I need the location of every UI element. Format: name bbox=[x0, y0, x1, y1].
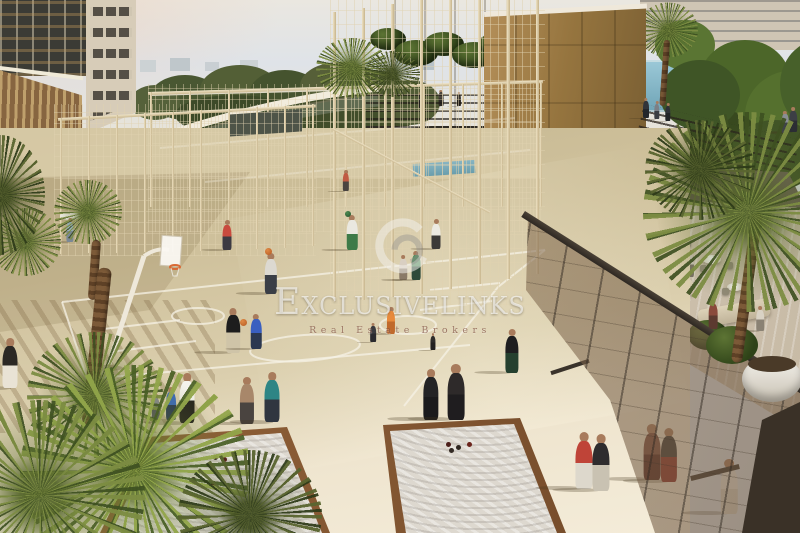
person bbox=[370, 323, 376, 342]
boule-ball bbox=[449, 448, 454, 453]
boule-ball bbox=[467, 442, 472, 447]
fence-post bbox=[60, 118, 62, 254]
person bbox=[343, 170, 349, 191]
fence-post bbox=[284, 106, 286, 248]
person bbox=[265, 253, 277, 294]
planter-soil bbox=[748, 356, 796, 372]
palm-tree-crown bbox=[645, 120, 755, 220]
fence-post bbox=[507, 0, 510, 279]
fence-post bbox=[478, 0, 481, 284]
fence-post bbox=[536, 0, 539, 274]
person bbox=[399, 255, 407, 280]
fence-post bbox=[391, 4, 394, 297]
person bbox=[3, 338, 18, 388]
person bbox=[251, 314, 262, 349]
palm-tree-crown bbox=[364, 51, 420, 97]
hoop-backboard bbox=[160, 235, 182, 266]
person bbox=[423, 369, 438, 420]
person bbox=[387, 307, 395, 334]
person bbox=[223, 220, 232, 250]
person-seated bbox=[430, 333, 435, 350]
boule-ball bbox=[456, 445, 461, 450]
person bbox=[347, 215, 358, 250]
basketball bbox=[240, 319, 247, 326]
person-behind-glass bbox=[661, 428, 677, 482]
amenity-deck-render: EXCLUSIVELINKS Real Estate Brokers bbox=[0, 0, 800, 533]
person-runner bbox=[505, 329, 518, 373]
fence-post bbox=[312, 104, 314, 246]
palm-tree-crown bbox=[54, 180, 122, 244]
person bbox=[448, 364, 465, 420]
person-runner bbox=[592, 434, 609, 491]
person bbox=[432, 219, 441, 249]
person bbox=[226, 308, 240, 353]
person-behind-glass bbox=[644, 424, 661, 480]
person bbox=[240, 377, 254, 424]
fence-post bbox=[449, 0, 452, 289]
person-runner bbox=[575, 432, 592, 489]
ball bbox=[345, 211, 351, 217]
boule-ball bbox=[446, 442, 451, 447]
person bbox=[412, 251, 421, 280]
basketball bbox=[265, 248, 272, 255]
person bbox=[265, 372, 280, 422]
fence-post bbox=[256, 107, 258, 249]
